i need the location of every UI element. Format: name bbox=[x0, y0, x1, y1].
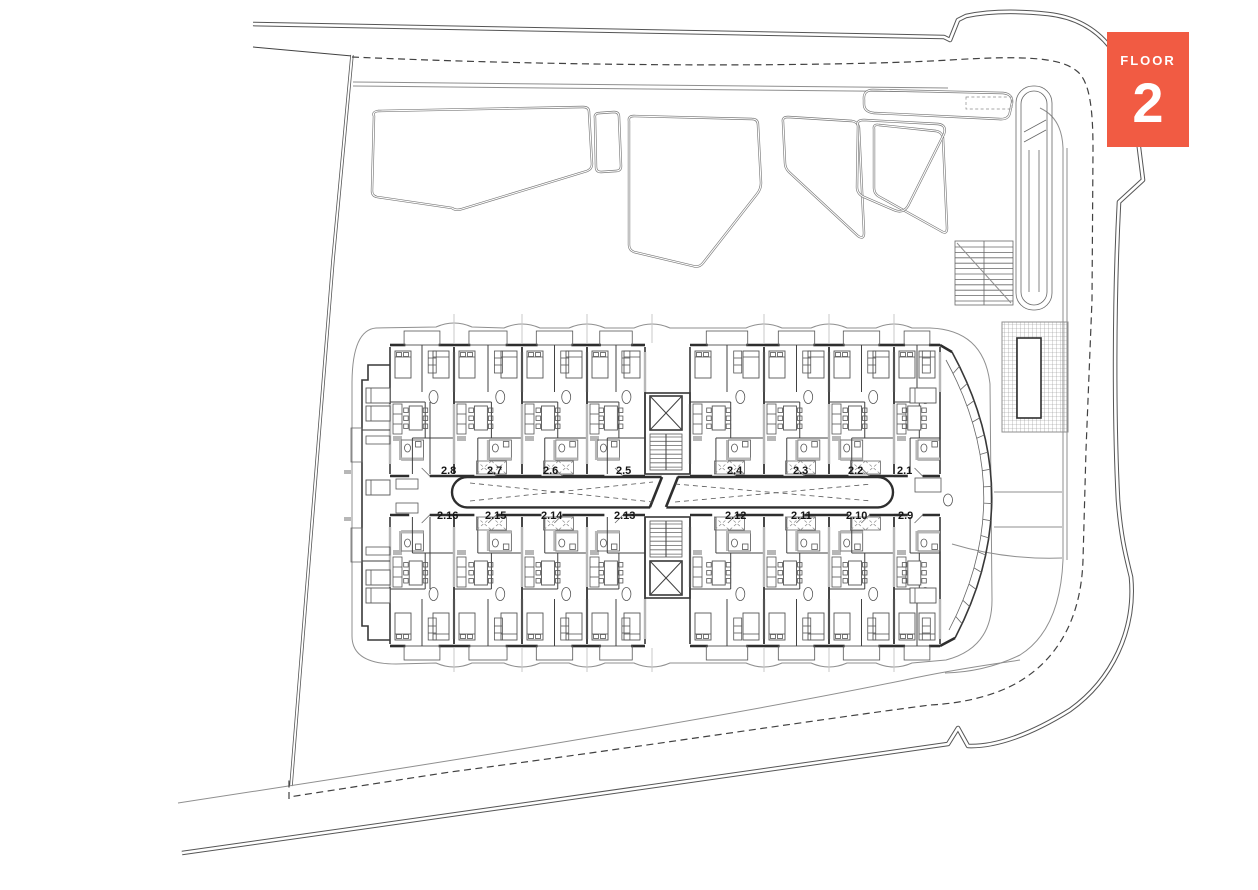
unit-label-2.10: 2.10 bbox=[846, 510, 867, 522]
unit-2.7 bbox=[453, 331, 523, 476]
floor-plan-page: 2.82.72.62.52.42.32.22.12.162.152.142.13… bbox=[0, 0, 1258, 890]
unit-2.12 bbox=[689, 515, 765, 660]
unit-label-2.1: 2.1 bbox=[897, 465, 912, 477]
unit-label-2.9: 2.9 bbox=[898, 510, 913, 522]
unit-2.13 bbox=[586, 515, 646, 660]
unit-label-2.13: 2.13 bbox=[614, 510, 635, 522]
unit-label-2.6: 2.6 bbox=[543, 465, 558, 477]
unit-label-2.8: 2.8 bbox=[441, 465, 456, 477]
unit-2.6 bbox=[521, 331, 588, 476]
unit-label-2.2: 2.2 bbox=[848, 465, 863, 477]
unit-2.10 bbox=[828, 515, 895, 660]
unit-2.1 bbox=[893, 331, 941, 476]
unit-label-2.11: 2.11 bbox=[791, 510, 812, 522]
unit-2.14 bbox=[521, 515, 588, 660]
unit-label-2.16: 2.16 bbox=[437, 510, 458, 522]
unit-label-2.4: 2.4 bbox=[727, 465, 743, 477]
unit-label-2.15: 2.15 bbox=[485, 510, 506, 522]
unit-2.4 bbox=[689, 331, 765, 476]
floor-badge: FLOOR 2 bbox=[1107, 32, 1189, 147]
unit-2.15 bbox=[453, 515, 523, 660]
unit-label-2.5: 2.5 bbox=[616, 465, 631, 477]
unit-label-2.3: 2.3 bbox=[793, 465, 808, 477]
unit-2.3 bbox=[763, 331, 830, 476]
unit-2.2 bbox=[828, 331, 895, 476]
unit-2.8 bbox=[389, 331, 455, 476]
unit-label-2.7: 2.7 bbox=[487, 465, 502, 477]
unit-label-2.12: 2.12 bbox=[725, 510, 746, 522]
site-plan-drawing: 2.82.72.62.52.42.32.22.12.162.152.142.13… bbox=[0, 0, 1258, 890]
unit-2.16 bbox=[389, 515, 455, 660]
floor-badge-label: FLOOR bbox=[1120, 54, 1176, 67]
floor-badge-number: 2 bbox=[1132, 75, 1163, 131]
unit-label-2.14: 2.14 bbox=[541, 510, 563, 522]
unit-2.9 bbox=[893, 515, 941, 660]
unit-2.5 bbox=[586, 331, 646, 476]
unit-2.11 bbox=[763, 515, 830, 660]
